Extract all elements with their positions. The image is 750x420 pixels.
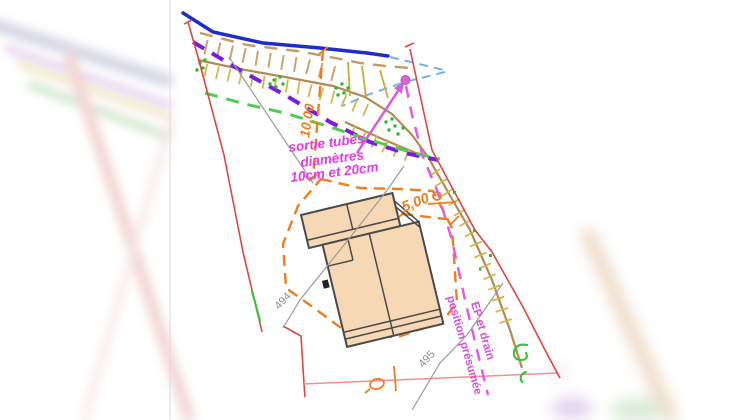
stream-line <box>183 13 388 56</box>
dimension-5m-label: 5,00 <box>400 190 432 215</box>
dimension-10m-label: 10,00 <box>297 102 317 138</box>
boundary-markers-green <box>453 191 492 271</box>
site-plan-svg: sortie tubes diamètres 10cm et 20cm 10,0… <box>0 0 750 420</box>
outlet-point <box>401 76 410 85</box>
slope-hachures-upper <box>205 47 335 74</box>
ghost-plan-right <box>550 230 672 420</box>
site-plan-canvas: sortie tubes diamètres 10cm et 20cm 10,0… <box>0 0 750 420</box>
drain-note-label: EP et drain position présumée <box>444 295 496 397</box>
contour-494-label: 494 <box>272 290 293 312</box>
chimney-marker <box>322 280 330 289</box>
boundary-west <box>184 20 262 332</box>
vegetation-cluster <box>384 117 404 135</box>
boundary-notch <box>283 326 305 397</box>
contour-495-label: 495 <box>416 348 437 370</box>
stream-dashed-line <box>390 57 448 71</box>
building-footprint <box>301 189 443 351</box>
boundary-green-segment <box>252 291 260 321</box>
ghost-plan-left <box>0 22 190 420</box>
